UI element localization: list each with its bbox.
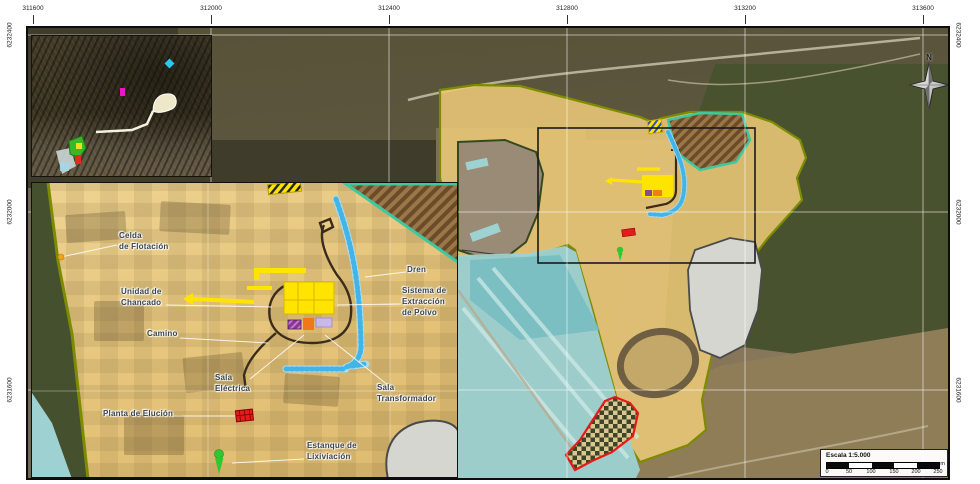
scalebar-title: Escala 1:5.000 xyxy=(826,452,870,459)
coord-tick xyxy=(923,15,924,24)
inset-magenta-marker xyxy=(120,88,125,96)
scalebar-unit: m xyxy=(940,461,945,467)
label-camino: Camino xyxy=(147,329,178,340)
north-label: N xyxy=(908,54,950,62)
coord-right: 6231600 xyxy=(955,377,962,402)
map-canvas: Celdade Flotación Unidad deChancado Cami… xyxy=(0,0,980,484)
inset-site-cluster xyxy=(56,136,86,174)
coord-top: 312800 xyxy=(556,5,578,12)
coord-top: 313200 xyxy=(734,5,756,12)
inset-locator-map xyxy=(31,35,212,177)
inset-cyan-marker xyxy=(165,59,175,69)
scalebar-segment xyxy=(827,463,849,468)
coord-tick xyxy=(389,15,390,24)
orange-marker-detail xyxy=(58,254,64,260)
label-estanque-lixiviacion: Estanque deLixiviación xyxy=(307,441,357,463)
coord-left: 6232400 xyxy=(7,22,14,47)
scalebar-tick: 0 xyxy=(825,469,828,475)
coord-tick xyxy=(211,15,212,24)
label-sistema-extraccion: Sistema deExtracciónde Polvo xyxy=(402,286,446,318)
scalebar-tick: 150 xyxy=(889,469,898,475)
inset-route xyxy=(96,94,176,132)
scalebar-segment xyxy=(872,463,894,468)
hatch-marker-main xyxy=(647,119,663,134)
scalebar-tick: 200 xyxy=(911,469,920,475)
scalebar-segment xyxy=(849,463,871,468)
red-marker-main xyxy=(622,228,636,237)
coord-tick xyxy=(745,15,746,24)
coord-top: 312400 xyxy=(378,5,400,12)
leach-pond-detail xyxy=(386,421,458,478)
coord-right: 6232000 xyxy=(955,199,962,224)
coord-top: 313600 xyxy=(912,5,934,12)
detail-gridlines xyxy=(32,183,458,478)
coord-right: 6232400 xyxy=(955,22,962,47)
coord-tick xyxy=(567,15,568,24)
scalebar-tick: 100 xyxy=(866,469,875,475)
label-dren: Dren xyxy=(407,265,426,276)
detail-panel: Celdade Flotación Unidad deChancado Cami… xyxy=(31,182,458,478)
hatch-marker-detail xyxy=(268,183,302,195)
coord-left: 6232000 xyxy=(7,199,14,224)
leach-pond-main xyxy=(688,238,762,358)
scalebar-tick: 250 xyxy=(933,469,942,475)
coord-tick xyxy=(33,15,34,24)
scalebar-segment xyxy=(894,463,916,468)
detail-west-vegetation xyxy=(32,183,88,478)
facility-detail xyxy=(183,268,334,330)
scalebar-segment xyxy=(917,463,939,468)
map-frame: Celdade Flotación Unidad deChancado Cami… xyxy=(26,26,950,480)
label-sala-electrica: SalaEléctrica xyxy=(215,373,250,395)
green-marker-detail xyxy=(215,450,224,475)
compass-icon xyxy=(908,62,950,110)
north-arrow: N xyxy=(908,54,950,116)
label-unidad-chancado: Unidad deChancado xyxy=(121,287,161,309)
scalebar-bar xyxy=(826,462,940,469)
scalebar: Escala 1:5.000 0 50 100 150 200 250 m xyxy=(820,449,948,477)
label-planta-elucion: Planta de Elución xyxy=(103,409,173,420)
inset-overlay xyxy=(32,36,211,176)
detail-overlay xyxy=(32,183,458,478)
coord-top: 311600 xyxy=(22,5,43,12)
scalebar-tick: 50 xyxy=(846,469,852,475)
hatched-area-detail xyxy=(346,184,458,263)
red-marker-detail xyxy=(235,409,253,422)
label-celda-flotacion: Celdade Flotación xyxy=(119,231,169,253)
coord-top: 312000 xyxy=(200,5,222,12)
coord-left: 6231600 xyxy=(7,377,14,402)
label-sala-transformador: SalaTransformador xyxy=(377,383,436,405)
